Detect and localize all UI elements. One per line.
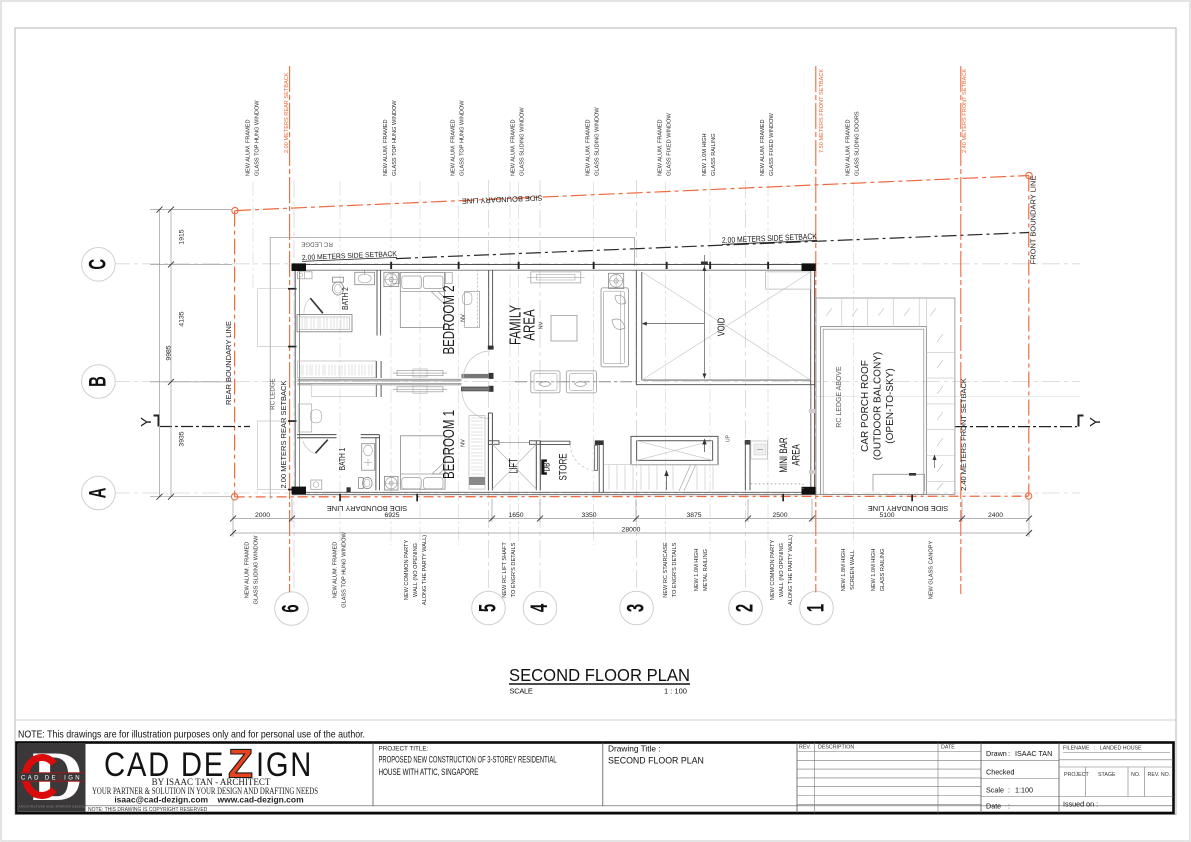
svg-text:Scale: Scale <box>986 786 1004 795</box>
svg-text:GLASS TOP HUNG WINDOW: GLASS TOP HUNG WINDOW <box>392 100 398 176</box>
svg-text:SCREEN WALL: SCREEN WALL <box>850 550 856 590</box>
svg-text:NEW ALUM. FRAMED: NEW ALUM. FRAMED <box>383 119 389 176</box>
svg-text:6: 6 <box>278 604 304 612</box>
svg-text:GLASS FIXED WINDOW: GLASS FIXED WINDOW <box>769 113 775 176</box>
svg-text:NEW ALUM. FRAMED: NEW ALUM. FRAMED <box>246 119 252 176</box>
svg-text:Drawing Title :: Drawing Title : <box>608 744 661 754</box>
svg-text:STAGE: STAGE <box>1098 772 1116 778</box>
svg-text:B: B <box>85 376 111 387</box>
svg-text:NEW 1.8M HIGH: NEW 1.8M HIGH <box>841 549 847 592</box>
svg-text:WALL (NO OPENING: WALL (NO OPENING <box>413 543 419 597</box>
svg-text:GLASS TOP HUNG WINDOW: GLASS TOP HUNG WINDOW <box>460 100 466 176</box>
svg-text:RC LEDGE ABOVE: RC LEDGE ABOVE <box>836 366 843 428</box>
svg-text:VOID: VOID <box>715 317 726 336</box>
svg-text::: : <box>1008 802 1010 811</box>
svg-text:7.50 METERS FRONT SETBACK: 7.50 METERS FRONT SETBACK <box>819 69 825 153</box>
svg-text:PROJECT: PROJECT <box>1064 772 1089 778</box>
svg-text:NEW ALUM. FRAMED: NEW ALUM. FRAMED <box>846 119 852 176</box>
svg-text:FRONT BOUNDARY LINE: FRONT BOUNDARY LINE <box>1029 176 1038 265</box>
svg-text:DESCRIPTION: DESCRIPTION <box>818 745 854 751</box>
svg-text:28000: 28000 <box>622 527 641 534</box>
svg-text:ISAAC TAN: ISAAC TAN <box>1015 749 1052 758</box>
svg-text:3935: 3935 <box>179 431 186 446</box>
svg-text:PROPOSED NEW CONSTRUCTION OF 3: PROPOSED NEW CONSTRUCTION OF 3-STOREY RE… <box>379 755 557 765</box>
svg-text:NOTE: THIS DRAWING IS COPYRIGH: NOTE: THIS DRAWING IS COPYRIGHT RESERVED <box>88 807 208 813</box>
svg-text:TO ENGR'S DETAILS: TO ENGR'S DETAILS <box>672 542 678 597</box>
svg-text:BATH 1: BATH 1 <box>337 448 347 471</box>
svg-text:UP: UP <box>726 434 732 442</box>
svg-text:RC LEDGE: RC LEDGE <box>270 378 277 410</box>
svg-text:SECOND FLOOR PLAN: SECOND FLOOR PLAN <box>509 665 690 685</box>
svg-text:GLASS TOP HUNG WINDOW: GLASS TOP HUNG WINDOW <box>255 100 261 176</box>
svg-text:DATE: DATE <box>941 745 955 751</box>
svg-text:AREA: AREA <box>520 309 538 341</box>
svg-text:5100: 5100 <box>879 512 894 519</box>
svg-text:PROJECT TITLE:: PROJECT TITLE: <box>379 746 429 753</box>
svg-text:NEW 1.0M HIGH: NEW 1.0M HIGH <box>702 133 708 176</box>
svg-text:(OUTDOOR BALCONY): (OUTDOOR BALCONY) <box>873 352 884 460</box>
svg-text:SCALE: SCALE <box>510 687 533 696</box>
svg-text:1:100: 1:100 <box>1015 786 1033 795</box>
svg-text:DB: DB <box>541 463 552 472</box>
svg-text:1650: 1650 <box>508 512 523 519</box>
svg-text:BATH 2: BATH 2 <box>340 287 350 310</box>
svg-text:4135: 4135 <box>179 311 186 326</box>
svg-text:6925: 6925 <box>384 512 399 519</box>
svg-text:SECOND FLOOR PLAN: SECOND FLOOR PLAN <box>608 756 704 766</box>
svg-text:NEW COMMON PARTY: NEW COMMON PARTY <box>404 540 410 601</box>
svg-text:3350: 3350 <box>581 512 596 519</box>
svg-text:NEW ALUM. FRAMED: NEW ALUM. FRAMED <box>511 119 517 176</box>
svg-text::: : <box>1012 768 1014 777</box>
svg-text:2500: 2500 <box>772 512 787 519</box>
svg-text:3875: 3875 <box>686 512 701 519</box>
svg-text:GLASS SLIDING DOORS: GLASS SLIDING DOORS <box>855 111 861 176</box>
svg-text:isaac@cad-dezign.com www.ca: isaac@cad-dezign.com www.cad-dezign.com <box>114 795 304 805</box>
svg-text:NV: NV <box>461 439 467 447</box>
svg-text:GLASS SLIDING WINDOW: GLASS SLIDING WINDOW <box>595 107 601 176</box>
svg-text:NEW RC STAIRCASE: NEW RC STAIRCASE <box>663 542 669 598</box>
svg-text:NEW ALUM. FRAMED: NEW ALUM. FRAMED <box>451 119 457 176</box>
svg-text:GLASS SLIDING WINDOW: GLASS SLIDING WINDOW <box>254 535 260 604</box>
svg-text:CAR PORCH ROOF: CAR PORCH ROOF <box>860 360 871 452</box>
svg-text:REAR BOUNDARY LINE: REAR BOUNDARY LINE <box>224 321 233 405</box>
svg-text:Date: Date <box>986 802 1001 811</box>
svg-text:ALONG THE PARTY WALL): ALONG THE PARTY WALL) <box>788 535 794 605</box>
svg-text:FILENAME : LANDED HOUSE: FILENAME : LANDED HOUSE <box>1063 746 1142 752</box>
svg-text:GLASS RAILING: GLASS RAILING <box>711 133 717 176</box>
svg-text:3: 3 <box>623 604 649 612</box>
svg-text:NEW ALUM. FRAMED: NEW ALUM. FRAMED <box>333 542 339 599</box>
svg-text:GLASS SLIDING WINDOW: GLASS SLIDING WINDOW <box>520 107 526 176</box>
svg-text:NV: NV <box>461 314 467 322</box>
svg-text:2.00 METERS REAR SETBACK: 2.00 METERS REAR SETBACK <box>284 72 290 153</box>
svg-text:Y: Y <box>138 417 155 427</box>
svg-text:2.00 METERS REAR SETBACK: 2.00 METERS REAR SETBACK <box>279 381 288 489</box>
svg-text:A: A <box>85 488 111 499</box>
svg-text:NEW GLASS CANOPY: NEW GLASS CANOPY <box>929 541 935 600</box>
svg-text::: : <box>1008 749 1010 758</box>
svg-text:NEW COMMON PARTY: NEW COMMON PARTY <box>770 540 776 601</box>
svg-text:METAL RAILING: METAL RAILING <box>703 549 709 591</box>
svg-text:NEW ALUM. FRAMED: NEW ALUM. FRAMED <box>658 119 664 176</box>
svg-text:NO.: NO. <box>1131 772 1140 778</box>
svg-text:BEDROOM 2: BEDROOM 2 <box>439 285 457 354</box>
svg-text:ARCHITECTURE AND INTERIOR DESI: ARCHITECTURE AND INTERIOR DESIGN <box>19 805 86 809</box>
svg-text:REV.: REV. <box>799 745 811 751</box>
svg-text:2.40 METERS FRONT SETBACK: 2.40 METERS FRONT SETBACK <box>962 69 968 153</box>
svg-text:1: 1 <box>803 604 829 612</box>
svg-text:CAD DEZIGN: CAD DEZIGN <box>21 776 82 782</box>
svg-text:WALL (NO OPENING: WALL (NO OPENING <box>779 543 785 597</box>
svg-text:Issued on :: Issued on : <box>1063 800 1098 809</box>
svg-text:GLASS RAILING: GLASS RAILING <box>880 549 886 592</box>
svg-text:5: 5 <box>475 604 501 612</box>
svg-text:REV. NO.: REV. NO. <box>1148 772 1171 778</box>
svg-text:1915: 1915 <box>179 229 186 244</box>
svg-text:NEW ALUM. FRAMED: NEW ALUM. FRAMED <box>586 119 592 176</box>
svg-text:2.40 METERS FRONT SETBACK: 2.40 METERS FRONT SETBACK <box>959 378 968 491</box>
svg-text:RC LEDGE: RC LEDGE <box>301 241 333 248</box>
svg-text:ALONG THE PARTY WALL): ALONG THE PARTY WALL) <box>422 535 428 605</box>
svg-text:2: 2 <box>732 604 758 612</box>
svg-text:(OPEN-TO-SKY): (OPEN-TO-SKY) <box>885 368 896 443</box>
svg-text:Drawn: Drawn <box>986 749 1007 758</box>
svg-text:2400: 2400 <box>988 512 1003 519</box>
svg-text:NEW ALUM. FRAMED: NEW ALUM. FRAMED <box>760 119 766 176</box>
svg-text:STORE: STORE <box>557 453 570 480</box>
svg-text:AREA: AREA <box>790 444 803 466</box>
svg-text:9985: 9985 <box>166 345 173 360</box>
svg-text:HOUSE WITH ATTIC, SINGAPORE: HOUSE WITH ATTIC, SINGAPORE <box>379 767 479 777</box>
svg-text:2000: 2000 <box>255 512 270 519</box>
svg-text:NEW ALUM. FRAMED: NEW ALUM. FRAMED <box>245 542 251 599</box>
svg-text:Y: Y <box>1087 417 1104 427</box>
svg-text:1 : 100: 1 : 100 <box>664 687 687 696</box>
svg-text:NEW 1.0M HIGH: NEW 1.0M HIGH <box>694 549 700 592</box>
svg-text:BEDROOM 1: BEDROOM 1 <box>439 410 457 479</box>
svg-text:Checked: Checked <box>986 768 1014 777</box>
svg-text:GLASS FIXED WINDOW: GLASS FIXED WINDOW <box>667 113 673 176</box>
svg-text::: : <box>1008 786 1010 795</box>
svg-text:4: 4 <box>527 604 553 612</box>
svg-text:C: C <box>85 259 111 270</box>
svg-text:NV: NV <box>539 321 545 329</box>
svg-text:MINI BAR: MINI BAR <box>778 437 791 472</box>
svg-text:GLASS TOP HUNG WINDOW: GLASS TOP HUNG WINDOW <box>342 532 348 608</box>
svg-text:TO ENGR'S DETAILS: TO ENGR'S DETAILS <box>511 542 517 597</box>
svg-text:NEW RC LIFT SHAFT: NEW RC LIFT SHAFT <box>502 542 508 598</box>
svg-text:NEW 1.0M HIGH: NEW 1.0M HIGH <box>871 549 877 592</box>
svg-text:LIFT: LIFT <box>508 458 521 473</box>
